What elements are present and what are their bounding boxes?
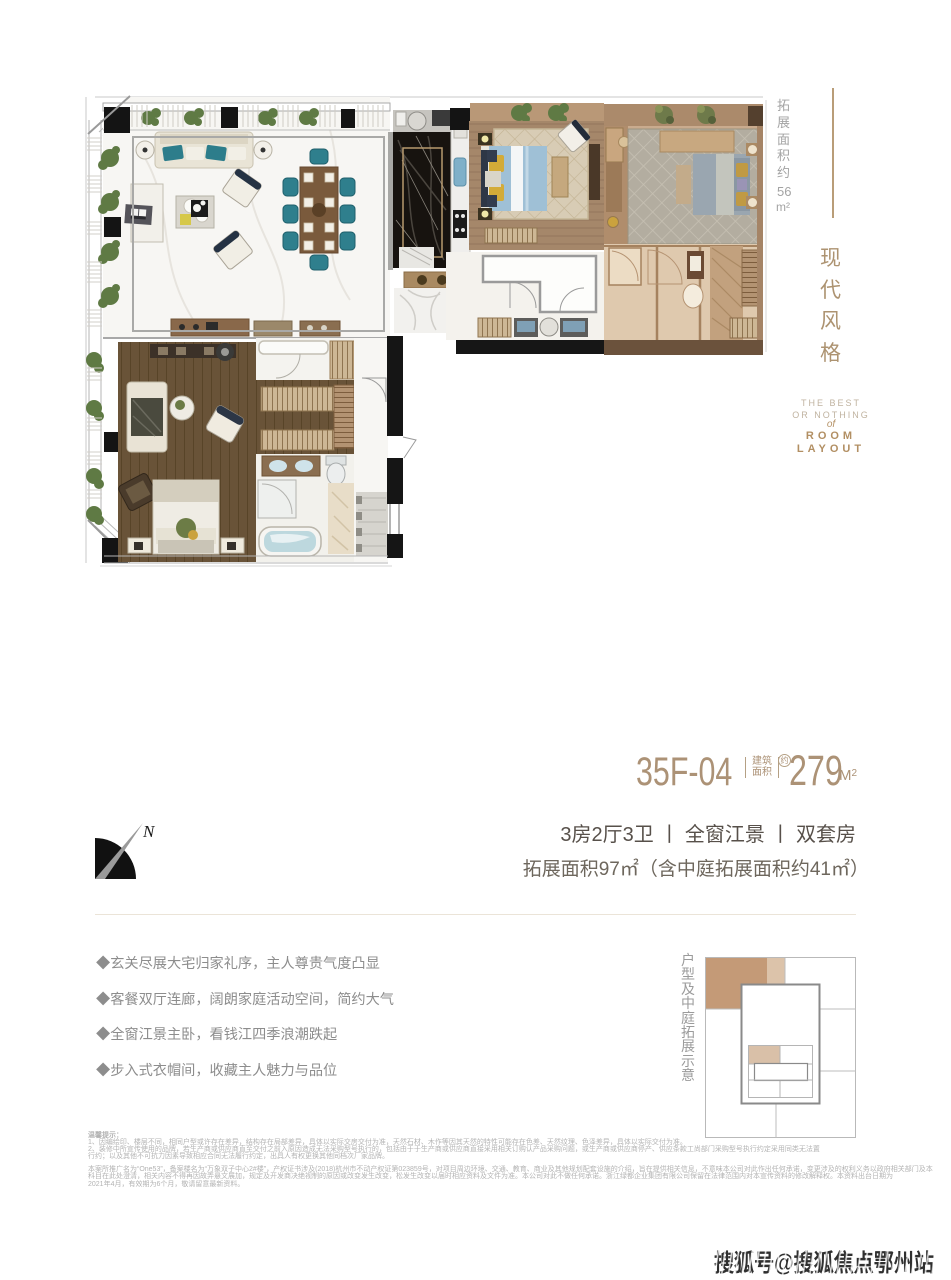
- svg-text:N: N: [142, 822, 156, 841]
